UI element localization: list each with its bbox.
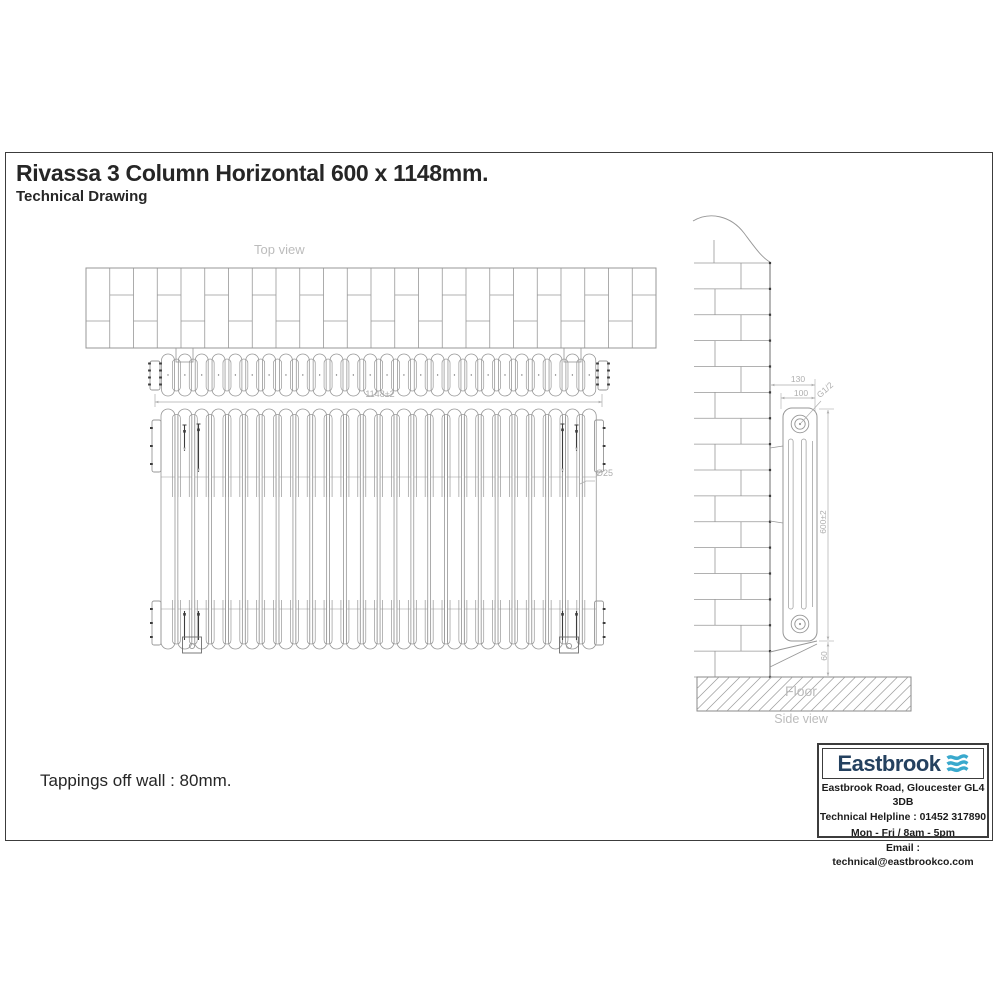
dim-depth-overall: 130 <box>779 374 817 384</box>
waves-icon <box>946 754 969 774</box>
brand-logo: Eastbrook <box>822 748 984 779</box>
side-view-label: Side view <box>757 712 845 726</box>
top-view-label: Top view <box>254 242 305 257</box>
dim-overall-height: 600±2 <box>818 493 828 551</box>
dim-column-tube: Ø25 <box>596 468 613 478</box>
side-view-wall <box>693 216 771 678</box>
dim-overall-width: 1148±2 <box>339 389 421 399</box>
dim-depth-centres: 100 <box>783 388 819 398</box>
brand-helpline: Technical Helpline : 01452 317890 <box>819 811 987 825</box>
brand-email: Email : technical@eastbrookco.com <box>819 842 987 869</box>
tappings-note: Tappings off wall : 80mm. <box>40 771 232 791</box>
brand-address: Eastbrook Road, Gloucester GL4 3DB <box>819 782 987 809</box>
top-view-wall <box>86 268 656 348</box>
dim-floor-gap: 60 <box>819 638 829 674</box>
floor-label: Floor <box>760 683 842 699</box>
side-view-radiator <box>770 408 817 667</box>
brand-name: Eastbrook <box>837 751 940 777</box>
brand-hours: Mon - Fri / 8am - 5pm <box>819 827 987 841</box>
manufacturer-info-box: Eastbrook Eastbrook Road, Gloucester GL4… <box>817 743 989 838</box>
front-view-radiator <box>150 409 606 653</box>
